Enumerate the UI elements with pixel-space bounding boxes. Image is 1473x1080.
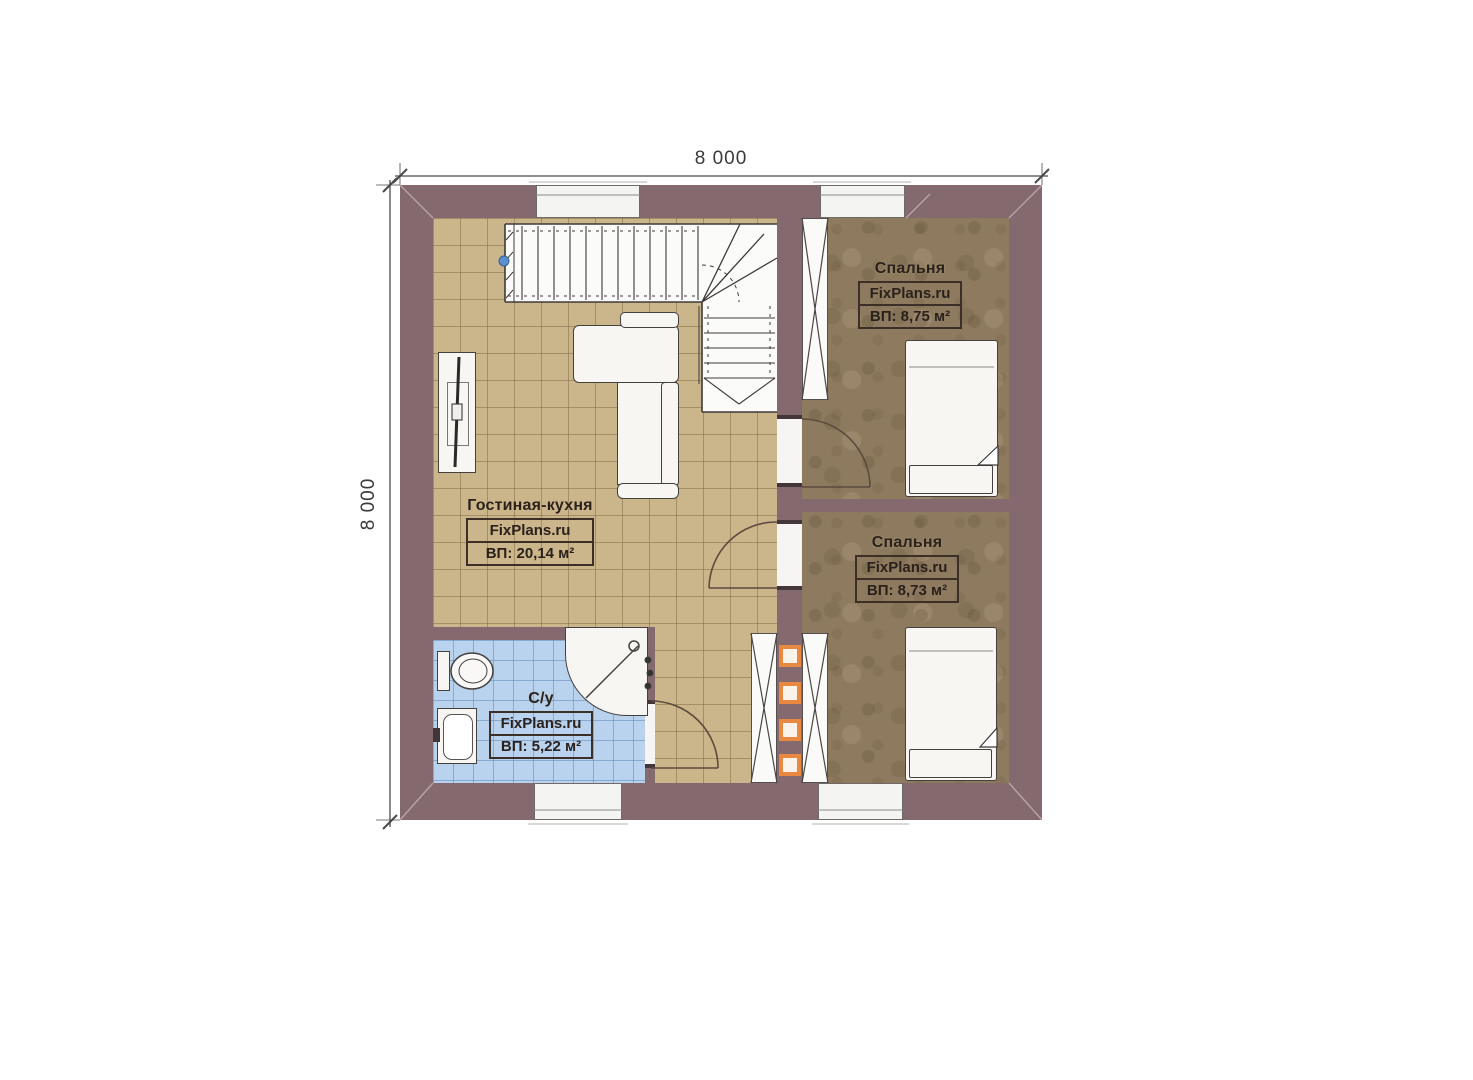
room-area-living: ВП: 20,14 м² [468, 543, 592, 564]
room-label-living: Гостиная-кухня FixPlans.ru ВП: 20,14 м² [466, 497, 594, 566]
flue-square-4 [779, 754, 801, 776]
window-bottom-bedroom-2 [818, 783, 903, 820]
dimension-top-label: 8 000 [661, 148, 781, 170]
flue-square-3 [779, 719, 801, 741]
wall-corridor-lower [777, 590, 802, 633]
dimension-left-label: 8 000 [358, 444, 380, 564]
room-name-living: Гостиная-кухня [466, 497, 594, 515]
window-top-living [536, 185, 640, 218]
vent-shaft-bedroom-1 [802, 218, 828, 400]
door-opening-bedroom-1 [777, 415, 802, 487]
room-area-bedroom-1: ВП: 8,75 м² [860, 306, 960, 327]
window-top-bedroom-1 [820, 185, 905, 218]
sofa-chaise [573, 325, 679, 383]
washbasin-faucet [433, 728, 440, 742]
vent-shaft-bedroom-2 [802, 633, 828, 783]
staircase-lower-flight [702, 302, 777, 412]
flue-square-1 [779, 645, 801, 667]
wall-corridor-mid [777, 487, 802, 520]
bed-2-foot [909, 749, 992, 778]
wall-corridor-upper [777, 218, 802, 415]
sofa-back-right [661, 382, 679, 486]
washbasin-bowl [443, 714, 473, 760]
wall-bottom [400, 783, 1042, 820]
room-label-bedroom-1: Спальня FixPlans.ru ВП: 8,75 м² [858, 260, 962, 329]
door-opening-bedroom-2 [777, 520, 802, 590]
wall-bathroom-right-lower [645, 768, 655, 783]
vent-shaft-hall [751, 633, 777, 783]
flue-square-2 [779, 682, 801, 704]
room-name-bathroom: С/у [489, 690, 593, 708]
toilet-tank [437, 651, 450, 691]
window-bottom-bathroom [534, 783, 622, 820]
room-brand-living: FixPlans.ru [468, 520, 592, 543]
wall-right [1009, 185, 1042, 820]
room-label-bathroom: С/у FixPlans.ru ВП: 5,22 м² [489, 690, 593, 759]
sofa-armrest [617, 483, 679, 499]
room-area-bedroom-2: ВП: 8,73 м² [857, 580, 957, 601]
room-label-bedroom-2: Спальня FixPlans.ru ВП: 8,73 м² [855, 534, 959, 603]
staircase-upper-flight [505, 224, 777, 302]
sofa-seat [617, 382, 664, 485]
wall-top [400, 185, 1042, 218]
room-area-bathroom: ВП: 5,22 м² [491, 736, 591, 757]
room-brand-bedroom-2: FixPlans.ru [857, 557, 957, 580]
room-name-bedroom-1: Спальня [858, 260, 962, 278]
wall-left [400, 185, 433, 820]
bed-1-foot [909, 465, 993, 494]
wall-between-bedrooms [802, 499, 1009, 512]
room-brand-bedroom-1: FixPlans.ru [860, 283, 960, 306]
sofa-back-top [620, 312, 679, 328]
room-name-bedroom-2: Спальня [855, 534, 959, 552]
floor-plan-canvas: 8 000 8 000 Гостиная-кухня FixPlans.ru В… [0, 0, 1473, 1080]
room-brand-bathroom: FixPlans.ru [491, 713, 591, 736]
tv-unit-inner [447, 382, 469, 446]
